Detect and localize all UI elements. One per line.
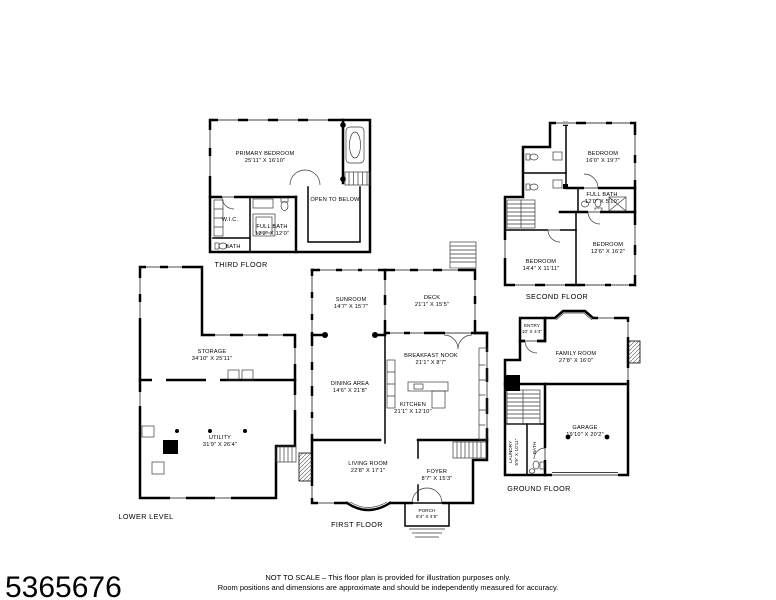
room-label: BEDROOM [588, 151, 618, 157]
room-dims: 14'6" X 21'8" [333, 388, 367, 394]
column-marker [605, 435, 610, 440]
stairs-second-floor [507, 200, 535, 228]
door-arc [525, 341, 537, 353]
sink-icon [553, 152, 562, 160]
floor-title: SECOND FLOOR [526, 292, 588, 301]
equipment-box [242, 370, 253, 380]
room-label: BEDROOM [526, 259, 556, 265]
stairs-third-floor [345, 172, 370, 185]
chimney-icon [628, 341, 640, 363]
equipment-box [152, 462, 164, 474]
sink-icon [553, 180, 562, 188]
floor-plan-canvas: PRIMARY BEDROOM 25'11" X 16'10" OPEN TO … [0, 0, 776, 600]
windows [140, 267, 295, 498]
room-label: FULL BATH [586, 192, 617, 198]
column-marker [322, 332, 328, 338]
room-label: FOYER [427, 469, 447, 475]
room-dims: 25'11" X 16'10" [245, 158, 285, 164]
lower-level-plan: STORAGE 34'10" X 25'11" UTILITY 31'9" X … [118, 267, 296, 521]
room-dims: 9'4" X 4'5" [416, 514, 438, 519]
room-dims: 5'9" X 10'11" [514, 438, 519, 465]
equipment-box [228, 370, 239, 380]
first-floor-plan: SUNROOM 14'7" X 15'7" DECK 21'1" X 15'5"… [299, 242, 487, 537]
toilet-icon [526, 154, 538, 160]
windows [210, 120, 328, 176]
vanity-icon [253, 199, 273, 208]
room-label: PORCH [418, 508, 435, 513]
room-label: KITCHEN [400, 402, 426, 408]
column-marker [243, 429, 247, 433]
toilet-icon [533, 461, 544, 469]
room-label: FAMILY ROOM [556, 351, 597, 357]
room-dims: 21'1" X 15'5" [415, 302, 449, 308]
room-dims: 14'4" X 11'11" [523, 266, 560, 272]
room-label: DINING AREA [331, 381, 369, 387]
stairs-first-floor [453, 442, 486, 458]
room-dims: 12'6" X 16'2" [591, 249, 625, 255]
listing-id: 5365676 [5, 571, 122, 600]
room-dims: 27'8" X 16'0" [559, 358, 593, 364]
room-label: LAUNDRY [508, 441, 513, 464]
door-arc [588, 212, 600, 224]
room-dims: 8'7" X 15'3" [422, 476, 453, 482]
column-marker [208, 429, 212, 433]
room-dims: 14'7" X 15'7" [334, 304, 368, 310]
stairs-deck [450, 242, 476, 268]
column-marker [372, 332, 378, 338]
room-dims: 16'0" X 19'7" [586, 158, 620, 164]
floor-title: FIRST FLOOR [331, 520, 383, 529]
toilet-icon [526, 184, 538, 190]
room-dims: 21'1" X 8'7" [416, 360, 447, 366]
windows [598, 318, 628, 380]
room-label: GARAGE [572, 425, 597, 431]
stairs-lower-level [276, 446, 296, 462]
column-marker [340, 176, 346, 182]
room-label: BEDROOM [593, 242, 623, 248]
porch-steps [409, 529, 445, 537]
furnace-icon [163, 440, 178, 454]
room-dims: 21'1" X 12'10" [394, 409, 432, 415]
disclaimer-line1: NOT TO SCALE – This floor plan is provid… [265, 573, 510, 582]
disclaimer-line2: Room positions and dimensions are approx… [218, 583, 558, 592]
room-label: UTILITY [209, 435, 231, 441]
room-label: BREAKFAST NOOK [404, 353, 458, 359]
room-label: DECK [424, 295, 440, 301]
sink-icon [529, 469, 535, 473]
room-label: BATH [225, 244, 240, 250]
open-to-below-outline [308, 187, 360, 242]
door-arc [584, 174, 598, 188]
bathtub-icon [346, 127, 364, 163]
second-floor-plan: BEDROOM 16'0" X 19'7" FULL BATH 12'0" X … [505, 121, 635, 301]
room-label: BATH [532, 442, 537, 454]
door-arc [548, 230, 560, 242]
room-label: ENTRY [524, 323, 540, 328]
stairs-ground-floor [507, 390, 540, 424]
floor-title: GROUND FLOOR [507, 484, 571, 493]
door-arc [222, 197, 234, 209]
double-door-icon [444, 335, 472, 349]
double-door-icon [290, 170, 320, 185]
ground-floor-plan: ENTRY 10' X 4'4" FAMILY ROOM 27'8" X 16'… [505, 311, 640, 493]
floor-plan-page: PRIMARY BEDROOM 25'11" X 16'10" OPEN TO … [0, 0, 776, 600]
room-label: FULL BATH [256, 224, 287, 230]
floor-title: LOWER LEVEL [118, 512, 173, 521]
floor-title: THIRD FLOOR [214, 260, 267, 269]
room-dims: 12'2" X 12'0" [255, 231, 289, 237]
room-dims: 22'8" X 17'1" [351, 468, 385, 474]
room-label: STORAGE [198, 349, 227, 355]
toilet-icon [281, 198, 288, 211]
double-door-icon [412, 488, 442, 503]
equipment-box [142, 426, 154, 437]
room-dims: 10' X 4'4" [522, 329, 542, 334]
wall-mass [506, 375, 520, 391]
column-marker [175, 429, 179, 433]
room-label: W.I.C. [222, 217, 239, 223]
room-label: SUNROOM [336, 297, 367, 303]
room-dims: 12'0" X 5'10" [585, 199, 619, 205]
room-label: PRIMARY BEDROOM [236, 151, 295, 157]
room-dims: 19'10" X 20'2" [566, 432, 604, 438]
room-label: OPEN TO BELOW [310, 197, 360, 203]
third-floor-plan: PRIMARY BEDROOM 25'11" X 16'10" OPEN TO … [210, 120, 370, 269]
column-marker [340, 122, 346, 128]
room-dims: 34'10" X 25'11" [192, 356, 232, 362]
room-label: LIVING ROOM [348, 461, 388, 467]
fireplace-icon [299, 453, 312, 481]
wall-post [563, 184, 568, 189]
room-dims: 31'9" X 26'4" [203, 442, 237, 448]
